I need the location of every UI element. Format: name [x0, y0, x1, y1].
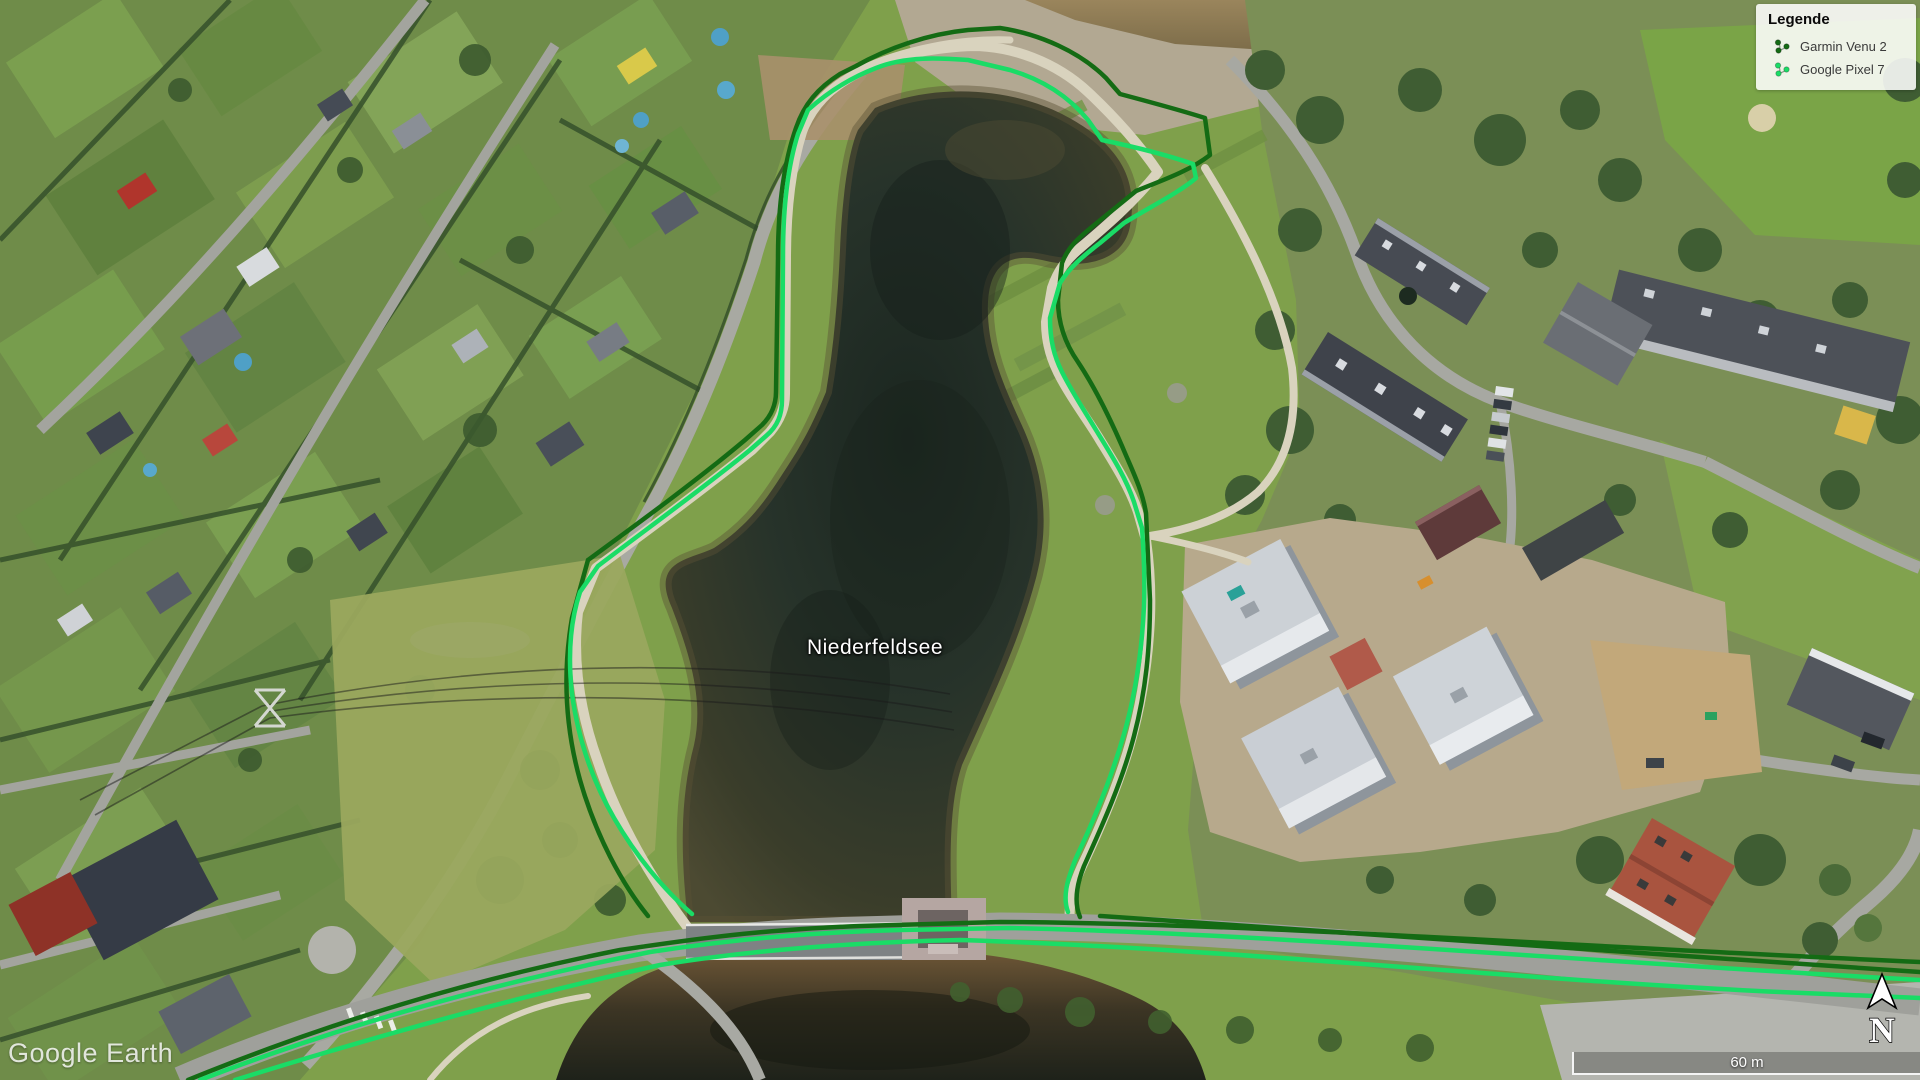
aerial-imagery[interactable]: [0, 0, 1920, 1080]
north-compass[interactable]: N: [1854, 970, 1910, 1052]
google-earth-watermark: Google Earth: [8, 1038, 173, 1069]
track-path-icon: [1774, 38, 1791, 55]
legend-title: Legende: [1768, 11, 1908, 28]
north-label: N: [1869, 1010, 1895, 1050]
scale-bar: 60 m: [1572, 1052, 1920, 1075]
lake-name-label: Niederfeldsee: [807, 636, 943, 660]
legend-item-label: Garmin Venu 2: [1800, 39, 1887, 54]
legend-panel: Legende Garmin Venu 2 Google Pixel 7: [1756, 4, 1916, 90]
urban-right: [1180, 0, 1920, 1080]
legend-item-label: Google Pixel 7: [1800, 62, 1885, 77]
google-earth-viewport[interactable]: Niederfeldsee Google Earth Legende Garmi…: [0, 0, 1920, 1080]
legend-item-pixel[interactable]: Google Pixel 7: [1768, 58, 1908, 81]
legend-item-garmin[interactable]: Garmin Venu 2: [1768, 35, 1908, 58]
track-path-icon: [1774, 61, 1791, 78]
scale-bar-label: 60 m: [1730, 1054, 1763, 1071]
north-arrow-icon: [1868, 974, 1896, 1008]
